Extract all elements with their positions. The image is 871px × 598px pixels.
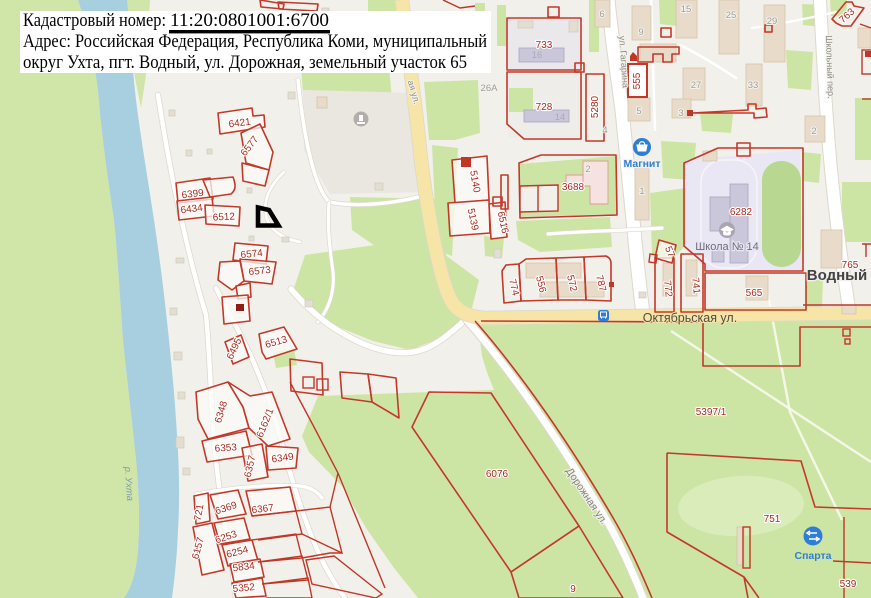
svg-text:Спарта: Спарта: [794, 550, 831, 562]
svg-text:1: 1: [639, 186, 644, 197]
svg-text:5: 5: [636, 106, 641, 117]
svg-text:3: 3: [678, 108, 683, 119]
svg-text:733: 733: [536, 40, 553, 51]
svg-text:26А: 26А: [481, 83, 499, 94]
svg-text:Школа № 14: Школа № 14: [695, 241, 759, 253]
svg-text:6: 6: [599, 9, 604, 20]
svg-text:Октябрьская ул.: Октябрьская ул.: [643, 311, 737, 325]
svg-text:565: 565: [746, 288, 763, 299]
svg-text:округ Ухта, пгт. Водный, ул. Д: округ Ухта, пгт. Водный, ул. Дорожная, з…: [23, 52, 467, 73]
svg-text:765: 765: [842, 260, 859, 271]
svg-text:6353: 6353: [214, 442, 237, 455]
svg-text:741: 741: [689, 277, 702, 295]
svg-text:9: 9: [638, 27, 643, 38]
svg-text:6076: 6076: [486, 469, 509, 480]
svg-text:2: 2: [585, 164, 590, 175]
svg-text:6282: 6282: [730, 207, 753, 218]
svg-text:2: 2: [811, 126, 816, 137]
svg-text:539: 539: [840, 579, 857, 590]
svg-text:Адрес: Российская Федерация, Р: Адрес: Российская Федерация, Республика …: [23, 31, 487, 52]
svg-text:751: 751: [764, 514, 781, 525]
svg-text:Кадастровый номер:: Кадастровый номер:: [23, 10, 166, 31]
svg-text:25: 25: [726, 10, 737, 21]
svg-text:5397/1: 5397/1: [696, 407, 727, 418]
svg-text:5352: 5352: [232, 582, 256, 595]
svg-text:16: 16: [532, 50, 543, 61]
svg-text:Магнит: Магнит: [623, 158, 660, 170]
svg-text:4: 4: [602, 125, 607, 136]
svg-text:3688: 3688: [562, 182, 585, 193]
svg-text:6512: 6512: [212, 211, 235, 223]
svg-text:14: 14: [555, 112, 566, 123]
svg-text:555: 555: [632, 72, 643, 89]
svg-text:772: 772: [661, 280, 674, 298]
svg-text:33: 33: [748, 80, 759, 91]
svg-text:5280: 5280: [590, 95, 601, 118]
svg-text:27: 27: [691, 80, 702, 91]
svg-text:15: 15: [681, 4, 692, 15]
svg-text:11:20:0801001:6700: 11:20:0801001:6700: [170, 10, 329, 31]
svg-text:9: 9: [570, 584, 576, 595]
svg-text:29: 29: [767, 16, 778, 27]
svg-text:728: 728: [536, 102, 553, 113]
